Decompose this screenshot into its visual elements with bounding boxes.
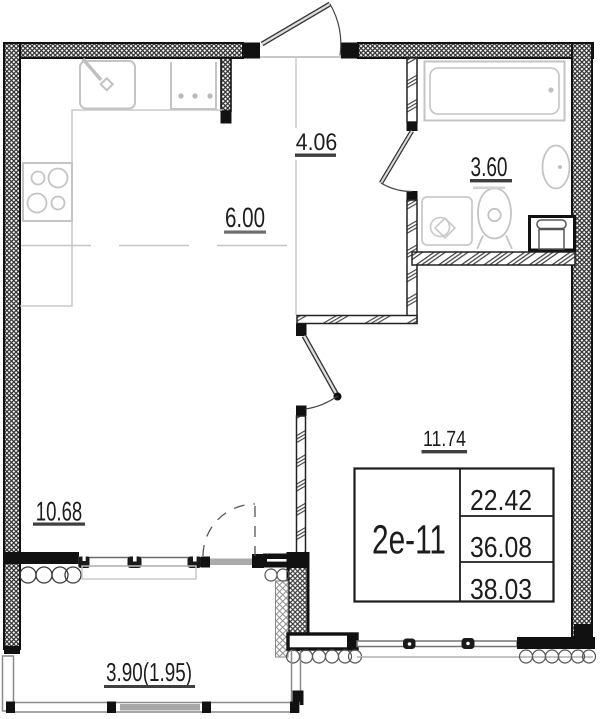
svg-text:6.00: 6.00	[225, 202, 265, 233]
svg-text:4.06: 4.06	[296, 129, 338, 156]
svg-text:3.90(1.95): 3.90(1.95)	[106, 657, 192, 687]
svg-text:11.74: 11.74	[423, 426, 466, 451]
svg-text:22.42: 22.42	[470, 485, 532, 517]
svg-text:38.03: 38.03	[470, 574, 532, 606]
svg-text:36.08: 36.08	[470, 532, 532, 564]
svg-text:3.60: 3.60	[471, 152, 508, 182]
svg-text:10.68: 10.68	[36, 497, 83, 527]
svg-text:2е-11: 2е-11	[372, 517, 446, 563]
